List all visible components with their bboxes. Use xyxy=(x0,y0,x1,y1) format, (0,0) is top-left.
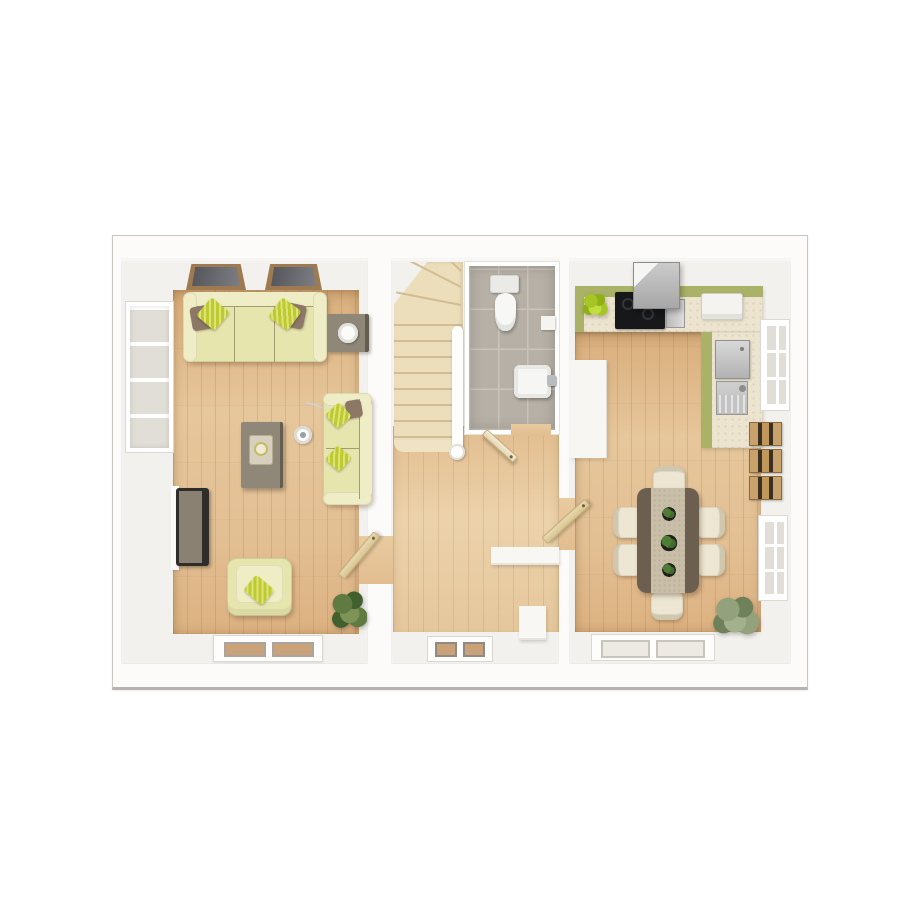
green-cushion xyxy=(325,445,352,472)
living-potted-plant xyxy=(331,588,367,632)
patio-glass xyxy=(656,640,705,658)
tall-kitchen-unit xyxy=(569,360,607,458)
patio-door xyxy=(591,634,715,661)
dining-chair xyxy=(697,507,725,538)
toilet-bowl xyxy=(495,293,516,331)
table-plant xyxy=(659,504,679,524)
three-seat-sofa xyxy=(183,292,327,362)
newel-post xyxy=(449,444,465,460)
sofa-arm-right xyxy=(313,292,327,362)
table-plant xyxy=(657,531,681,555)
armchair xyxy=(227,558,292,616)
living-front-window-1 xyxy=(186,264,246,290)
entry-partition-wall xyxy=(519,606,546,640)
wash-basin xyxy=(514,365,551,398)
coffee-table xyxy=(241,422,283,488)
winder-step-edge xyxy=(405,262,461,288)
drainer xyxy=(719,395,745,413)
table-plant xyxy=(659,560,679,580)
kitchen-side-window-top xyxy=(761,320,789,410)
dining-chair xyxy=(651,592,683,620)
hallway-floor xyxy=(393,426,559,632)
sink-tap xyxy=(739,385,746,392)
kitchen-sink xyxy=(716,381,748,415)
window-pane xyxy=(224,642,266,657)
wall-shelf xyxy=(541,316,555,330)
window-glass xyxy=(271,267,316,286)
floor-plan xyxy=(112,235,808,690)
banister xyxy=(452,326,463,452)
stainless-unit xyxy=(715,340,750,379)
counter-appliance xyxy=(701,293,743,320)
dining-chair xyxy=(697,544,725,576)
living-rear-window xyxy=(213,635,323,662)
lamp-shade-center xyxy=(300,432,306,438)
tv xyxy=(176,488,209,566)
living-side-window xyxy=(126,302,173,452)
worktop-green-edge xyxy=(701,332,712,448)
kitchen-side-window-bottom xyxy=(759,516,787,600)
table-end-dark xyxy=(685,488,699,593)
door-glazing xyxy=(463,642,485,657)
basin-tap xyxy=(547,375,556,386)
front-door xyxy=(427,636,493,662)
window-glass xyxy=(192,267,240,286)
side-table xyxy=(327,314,369,352)
candle-plate xyxy=(254,442,268,456)
kitchen-plant xyxy=(581,291,609,319)
dining-potted-plant xyxy=(711,594,759,638)
wall-shelf-box xyxy=(749,476,782,500)
wc-doorway-threshold xyxy=(511,424,551,436)
wc-room xyxy=(465,262,559,434)
toilet-cistern xyxy=(490,275,519,293)
patio-glass xyxy=(601,640,650,658)
hall-partition-wall xyxy=(491,547,559,565)
table-lamp xyxy=(338,323,358,343)
window-pane xyxy=(272,642,314,657)
wall-shelf-box xyxy=(749,449,782,473)
wall-shelf-box xyxy=(749,422,782,446)
arc-floor-lamp xyxy=(294,426,312,444)
burner xyxy=(642,308,654,320)
door-glazing xyxy=(435,642,457,657)
floor-plan-render xyxy=(0,0,917,917)
table-end-dark xyxy=(637,488,651,593)
two-seat-loveseat xyxy=(323,393,372,505)
winder-step-edge xyxy=(396,291,461,306)
living-front-window-2 xyxy=(265,264,322,290)
extractor-hood xyxy=(633,262,680,309)
